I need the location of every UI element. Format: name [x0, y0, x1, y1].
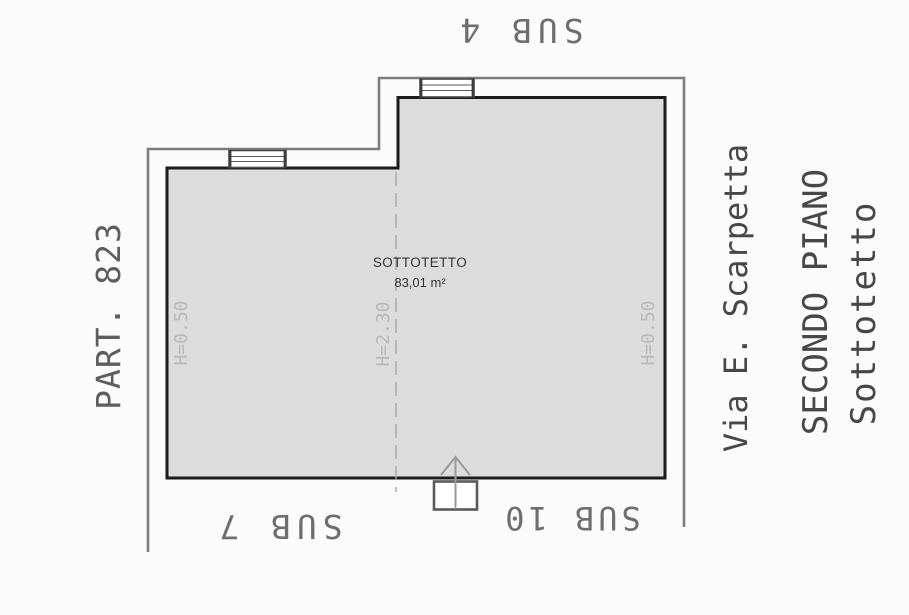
- label-sub-4: SUB 4: [419, 9, 619, 53]
- height-label-center: H=2.30: [372, 284, 394, 384]
- floor-plan-drawing: [0, 0, 909, 615]
- room-area-label: 83,01 m²: [340, 273, 500, 292]
- label-floor: SECONDO PIANO: [793, 132, 839, 472]
- label-parcel: PART. 823: [83, 196, 133, 436]
- cadastral-floor-plan: SUB 4 SUB 7 SUB 10 PART. 823 Via E. Scar…: [0, 0, 909, 615]
- height-label-left: H=0.50: [170, 283, 192, 383]
- room-name-label: SOTTOTETTO: [340, 253, 500, 273]
- room-label: SOTTOTETTO 83,01 m²: [340, 253, 500, 292]
- label-sub-7: SUB 7: [178, 505, 378, 549]
- label-floor-room: Sottotetto: [842, 163, 886, 463]
- height-label-right: H=0.50: [637, 283, 659, 383]
- window-top-right-icon: [420, 79, 474, 98]
- label-street: Via E. Scarpetta: [713, 118, 759, 478]
- label-sub-10: SUB 10: [471, 496, 671, 540]
- window-top-left-icon: [229, 150, 286, 168]
